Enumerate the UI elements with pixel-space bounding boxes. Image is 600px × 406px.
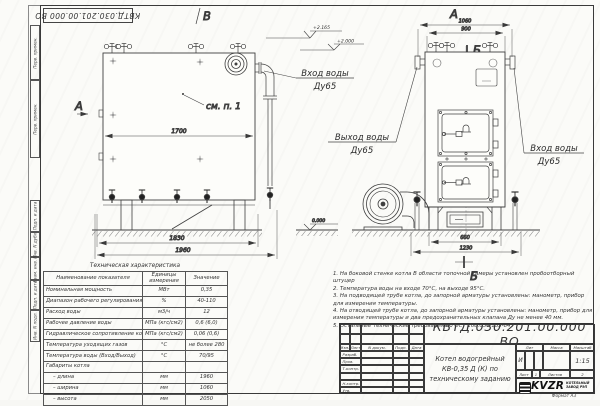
row-utv: Утв. [340, 387, 361, 394]
see-note-text: см. п. 1 [206, 102, 241, 112]
side-brackets [99, 110, 103, 160]
dim-1060-text: 1060 [459, 19, 472, 25]
sheets-label: Листов [540, 370, 570, 378]
outlet-size: Ду65 [350, 146, 374, 156]
dim-660-text: 660 [460, 235, 470, 241]
doc-number: КВТД.030.201.00.000 ВО [424, 324, 595, 344]
elevation-2000 [300, 44, 364, 50]
title-block: КВТД.030.201.00.000 ВО Изм. Лист N докум… [339, 323, 594, 393]
col-data: Дата [409, 344, 424, 351]
table-row: Рабочее давление водыМПа (кгс/см2)0,6 (6… [44, 318, 228, 329]
col-list: Лист [350, 344, 361, 351]
sheets-num: 2 [570, 370, 595, 378]
note-1: 1. На боковой стенке котла В области топ… [333, 271, 593, 285]
kvzr-logo-icon [519, 382, 531, 394]
base-side [425, 207, 505, 230]
dim-1960-text: 1960 [175, 247, 190, 254]
dim-900-text: 900 [461, 27, 471, 33]
col-izm: Изм. [340, 344, 350, 351]
side-valve-left [413, 192, 420, 230]
mass-value [543, 351, 570, 370]
outlet-text: Выход воды [335, 133, 389, 143]
col-doc: N докум. [361, 344, 393, 351]
elevation-2000-text: +2.000 [337, 39, 354, 45]
spec-table: Наименование показателя Единицы измерени… [43, 271, 228, 406]
dim-1700-text: 1700 [171, 128, 186, 135]
elevation-2165 [266, 31, 342, 38]
top-valves-side [428, 43, 497, 53]
elevation-2165-text: +2.165 [313, 25, 330, 31]
sheet-label: Лист [516, 370, 532, 378]
table-row: Габариты котла [44, 362, 228, 373]
note-3: 3. На подводящей трубе котла, до запорно… [333, 293, 593, 307]
spec-col-name: Наименование показателя [44, 272, 143, 286]
row-prov: Пров. [340, 358, 361, 365]
spec-col-value: Значение [186, 272, 228, 286]
sampling-flange [225, 53, 247, 75]
spec-table-title: Техническая характеристика [43, 263, 227, 269]
mass-label: Масса [543, 344, 570, 351]
inlet-top-text: Вход воды [301, 69, 349, 79]
view-letter-A-side: А [449, 7, 458, 21]
lit-label: Лит [516, 344, 543, 351]
ground-side [352, 230, 540, 237]
outlet-flange-left [415, 56, 425, 69]
view-letter-B: В [203, 9, 211, 23]
supports-front [121, 200, 245, 230]
inlet-top-size: Ду65 [313, 82, 337, 92]
kvzr-logo-word: KVZR [531, 380, 564, 392]
label-inlet-right: Вход воды Ду65 [514, 68, 584, 167]
label-inlet-top: Вход воды Ду65 [264, 69, 354, 92]
side-view: А 1060 900 Б [352, 7, 540, 283]
table-row: Температура воды (Вход/Выход)°С70/95 [44, 351, 228, 362]
boiler-body-front [103, 53, 255, 200]
kvzr-logo-subtitle: КОТЕЛЬНЫЙ ЗАВОД РЭП [566, 381, 589, 390]
format-note: Формат А3 [533, 394, 595, 399]
table-row: Гидравлическое сопротивление котлаМПа (к… [44, 329, 228, 340]
dim-1230-text: 1230 [460, 246, 473, 252]
table-row: – длинамм1960 [44, 373, 228, 384]
side-valve-right [511, 192, 518, 230]
spec-col-unit: Единицы измерения [143, 272, 186, 286]
table-row: – ширинамм1060 [44, 384, 228, 395]
row-tkontr: Т.контр. [340, 365, 361, 372]
technical-notes: 1. На боковой стенке котла В области топ… [333, 271, 593, 331]
inlet-pipe-elbow [255, 62, 277, 186]
row-razrab: Разраб. [340, 351, 361, 358]
table-row: Расход водым3/ч12 [44, 307, 228, 318]
view-letter-A-front: А [74, 99, 83, 113]
spec-header-row: Наименование показателя Единицы измерени… [44, 272, 228, 286]
product-name: Котел водогрейный КВ-0,35 Д (К) по техни… [424, 344, 516, 394]
company-logo: KVZR КОТЕЛЬНЫЙ ЗАВОД РЭП [516, 378, 595, 394]
note-4: 4. На отводящей трубе котла, до запорной… [333, 308, 593, 322]
sheet-num: 1 [532, 370, 540, 378]
table-row: Номинальная мощностьМВт0,35 [44, 286, 228, 297]
inlet-right-size: Ду65 [537, 157, 561, 167]
row-nkontr: Н.контр. [340, 380, 361, 387]
elevation-zero-text: 0.000 [312, 218, 325, 224]
label-outlet: Выход воды Ду65 [328, 67, 417, 156]
dim-1830-text: 1830 [169, 235, 184, 242]
table-row: Температура уходящих газов°Сне более 280 [44, 340, 228, 351]
top-valves-front [104, 44, 245, 54]
scale-label: Масштаб [570, 344, 595, 351]
table-row: Диапазон рабочего регулирования%40-110 [44, 296, 228, 307]
lit-value: И [516, 351, 525, 370]
inlet-right-text: Вход воды [530, 144, 578, 154]
callout-dot [182, 93, 184, 95]
note-2: 2. Температура воды на входе 70°С, на вы… [333, 286, 593, 293]
front-view: 1700 см. п. 1 В А 1830 1960 [74, 8, 338, 259]
scale-value: 1:15 [570, 351, 595, 370]
elevation-zero [296, 224, 338, 236]
col-podp: Подп. [393, 344, 409, 351]
inlet-flange-right [505, 56, 515, 69]
